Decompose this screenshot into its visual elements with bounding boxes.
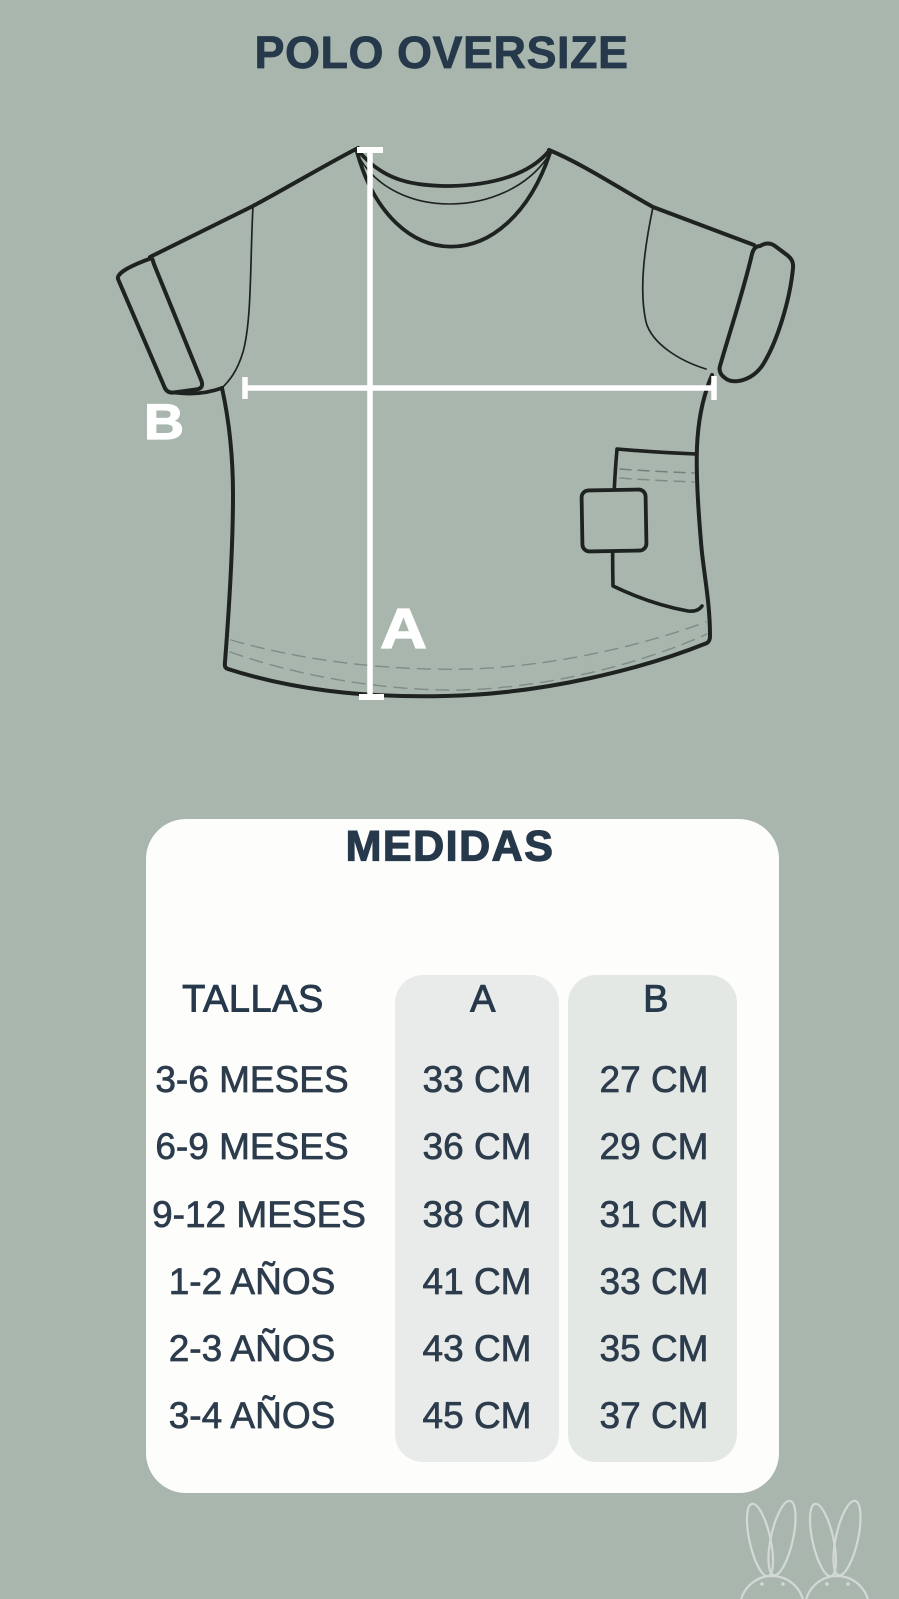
svg-text:B: B — [144, 394, 184, 450]
svg-text:A: A — [380, 597, 427, 661]
